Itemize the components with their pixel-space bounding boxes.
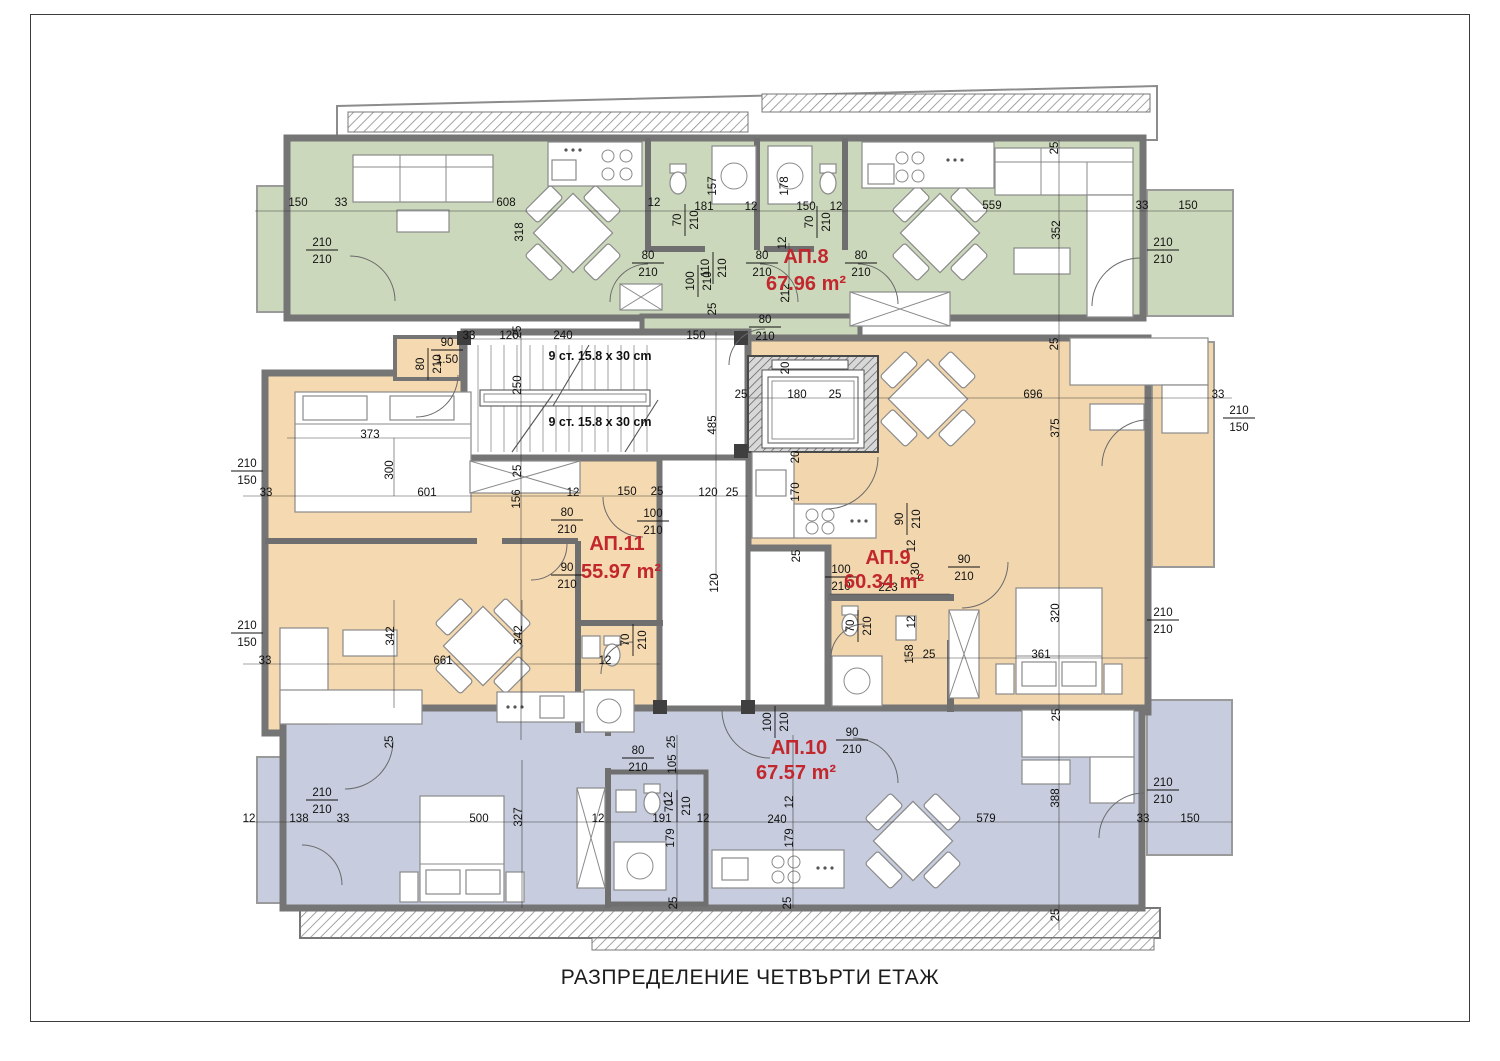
dimension-label: 138 bbox=[289, 813, 308, 825]
svg-text:210: 210 bbox=[312, 254, 331, 266]
svg-text:210: 210 bbox=[557, 524, 576, 536]
svg-text:250: 250 bbox=[512, 375, 524, 394]
svg-text:210: 210 bbox=[842, 744, 861, 756]
svg-text:240: 240 bbox=[767, 814, 786, 826]
svg-text:25: 25 bbox=[668, 897, 680, 910]
svg-text:150: 150 bbox=[617, 486, 636, 498]
dimension-label: 318 bbox=[514, 222, 526, 241]
svg-text:342: 342 bbox=[385, 626, 397, 645]
svg-text:12: 12 bbox=[648, 197, 661, 209]
svg-text:210: 210 bbox=[1153, 624, 1172, 636]
svg-text:661: 661 bbox=[433, 655, 452, 667]
dimension-label: 25 bbox=[1049, 338, 1061, 351]
stair-note: 9 ст. 15.8 x 30 cm bbox=[548, 415, 651, 429]
svg-text:120: 120 bbox=[709, 573, 721, 592]
svg-text:210: 210 bbox=[312, 804, 331, 816]
dimension-label: 33 bbox=[1212, 389, 1225, 401]
dimension-label: 579 bbox=[976, 813, 995, 825]
svg-text:25: 25 bbox=[782, 897, 794, 910]
svg-text:210: 210 bbox=[1153, 607, 1172, 619]
svg-text:12: 12 bbox=[745, 201, 758, 213]
svg-text:210: 210 bbox=[312, 787, 331, 799]
dimension-label: 178 bbox=[779, 176, 791, 195]
dimension-label: 12 bbox=[697, 813, 710, 825]
svg-text:210: 210 bbox=[237, 620, 256, 632]
svg-text:90: 90 bbox=[894, 513, 906, 526]
svg-text:210: 210 bbox=[1153, 777, 1172, 789]
svg-text:579: 579 bbox=[976, 813, 995, 825]
svg-text:12: 12 bbox=[830, 201, 843, 213]
dimension-label: 388 bbox=[1050, 788, 1062, 807]
svg-text:210: 210 bbox=[432, 354, 444, 373]
dimension-label: 12 bbox=[745, 201, 758, 213]
dimension-label: 33 bbox=[463, 330, 476, 342]
dimension-label: 33 bbox=[1137, 813, 1150, 825]
dimension-label: 25 bbox=[829, 389, 842, 401]
dimension-label: 179 bbox=[784, 828, 796, 847]
dimension-label: 180 bbox=[787, 389, 806, 401]
drawing-sheet: 1503360831821021012157181121781501270210… bbox=[0, 0, 1500, 1061]
svg-text:80: 80 bbox=[632, 745, 645, 757]
svg-text:210: 210 bbox=[779, 712, 791, 731]
svg-text:25: 25 bbox=[512, 326, 524, 339]
dimension-label: 25 bbox=[666, 736, 678, 749]
dimension-label: 150 bbox=[617, 486, 636, 498]
dimension-label: 352 bbox=[1051, 220, 1063, 239]
svg-text:210: 210 bbox=[911, 509, 923, 528]
dimension-label: 33 bbox=[335, 197, 348, 209]
dimension-label: 25 bbox=[1050, 909, 1062, 922]
svg-text:100: 100 bbox=[643, 508, 662, 520]
dimension-label: 120 bbox=[698, 487, 717, 499]
dimension-label: 179 bbox=[665, 828, 677, 847]
svg-text:210: 210 bbox=[1153, 254, 1172, 266]
dimension-label: 25 bbox=[512, 465, 524, 478]
svg-text:90: 90 bbox=[958, 554, 971, 566]
dimension-label: 150 bbox=[1180, 813, 1199, 825]
svg-text:210: 210 bbox=[1153, 794, 1172, 806]
svg-text:25: 25 bbox=[735, 389, 748, 401]
dimension-label: 12 bbox=[243, 813, 256, 825]
svg-text:210: 210 bbox=[643, 525, 662, 537]
dimension-label: 12 bbox=[648, 197, 661, 209]
svg-text:210: 210 bbox=[954, 571, 973, 583]
svg-text:210: 210 bbox=[237, 458, 256, 470]
svg-text:АП.8: АП.8 bbox=[783, 246, 828, 268]
svg-text:156: 156 bbox=[511, 489, 523, 508]
dimension-label: 240 bbox=[767, 814, 786, 826]
svg-text:67.96 m²: 67.96 m² bbox=[766, 273, 846, 295]
svg-text:80: 80 bbox=[759, 314, 772, 326]
svg-text:80: 80 bbox=[561, 507, 574, 519]
dimension-label: 300 bbox=[384, 460, 396, 479]
svg-text:150: 150 bbox=[1180, 813, 1199, 825]
svg-text:90: 90 bbox=[846, 727, 859, 739]
svg-text:25: 25 bbox=[1050, 909, 1062, 922]
dimension-label: 157 bbox=[707, 176, 719, 195]
dimension-label: 485 bbox=[707, 415, 719, 434]
dimension-label: 559 bbox=[982, 200, 1001, 212]
svg-text:178: 178 bbox=[779, 176, 791, 195]
svg-text:150: 150 bbox=[288, 197, 307, 209]
bottom-terrace bbox=[300, 908, 1160, 950]
svg-text:150: 150 bbox=[237, 637, 256, 649]
svg-text:361: 361 bbox=[1031, 649, 1050, 661]
svg-text:25: 25 bbox=[1051, 709, 1063, 722]
svg-text:210: 210 bbox=[755, 331, 774, 343]
dimension-label: 12 bbox=[784, 796, 796, 809]
dimension-label: 210210 bbox=[1147, 607, 1179, 636]
dimension-label: 33 bbox=[337, 813, 350, 825]
dimension-label: 191 bbox=[652, 813, 671, 825]
dimension-label: 25 bbox=[668, 897, 680, 910]
svg-text:170: 170 bbox=[790, 482, 802, 501]
svg-text:375: 375 bbox=[1050, 418, 1062, 437]
svg-text:210: 210 bbox=[637, 630, 649, 649]
svg-text:373: 373 bbox=[360, 429, 379, 441]
svg-text:33: 33 bbox=[337, 813, 350, 825]
dimension-label: 105 bbox=[667, 754, 679, 773]
dimension-label: 210150 bbox=[231, 458, 263, 487]
dimension-label: 170 bbox=[790, 482, 802, 501]
svg-text:210: 210 bbox=[1229, 405, 1248, 417]
svg-text:157: 157 bbox=[707, 176, 719, 195]
dimension-label: 327 bbox=[513, 807, 525, 826]
svg-text:191: 191 bbox=[652, 813, 671, 825]
svg-text:25: 25 bbox=[829, 389, 842, 401]
svg-text:180: 180 bbox=[787, 389, 806, 401]
dimension-label: 25 bbox=[1051, 709, 1063, 722]
svg-text:179: 179 bbox=[665, 828, 677, 847]
svg-text:150: 150 bbox=[237, 475, 256, 487]
svg-text:АП.11: АП.11 bbox=[589, 533, 644, 555]
svg-text:210: 210 bbox=[628, 762, 647, 774]
dimension-label: 25 bbox=[707, 303, 719, 316]
svg-text:25: 25 bbox=[1049, 338, 1061, 351]
svg-text:12: 12 bbox=[784, 796, 796, 809]
dimension-label: 25 bbox=[384, 736, 396, 749]
svg-text:33: 33 bbox=[1137, 813, 1150, 825]
svg-text:179: 179 bbox=[784, 828, 796, 847]
svg-text:210: 210 bbox=[557, 579, 576, 591]
dimension-label: 150 bbox=[1178, 200, 1197, 212]
svg-text:12: 12 bbox=[663, 792, 675, 805]
svg-text:33: 33 bbox=[259, 655, 272, 667]
svg-text:150: 150 bbox=[1229, 422, 1248, 434]
svg-text:105: 105 bbox=[667, 754, 679, 773]
svg-text:300: 300 bbox=[384, 460, 396, 479]
dimension-label: 250 bbox=[512, 375, 524, 394]
dimension-label: 25 bbox=[651, 486, 664, 498]
dimension-label: 320 bbox=[1050, 603, 1062, 622]
dimension-label: 12 bbox=[906, 616, 918, 629]
dimension-label: 25 bbox=[512, 326, 524, 339]
dimension-label: 25 bbox=[1049, 142, 1061, 155]
svg-text:АП.10: АП.10 bbox=[771, 737, 827, 759]
dimension-label: 33 bbox=[260, 487, 273, 499]
svg-text:138: 138 bbox=[289, 813, 308, 825]
svg-text:158: 158 bbox=[904, 644, 916, 663]
dimension-label: 33 bbox=[1136, 200, 1149, 212]
svg-text:80: 80 bbox=[756, 250, 769, 262]
dimension-label: 158 bbox=[904, 644, 916, 663]
svg-text:601: 601 bbox=[417, 487, 436, 499]
svg-text:210: 210 bbox=[702, 271, 714, 290]
svg-text:55.97 m²: 55.97 m² bbox=[581, 561, 661, 583]
svg-text:388: 388 bbox=[1050, 788, 1062, 807]
svg-text:100: 100 bbox=[762, 712, 774, 731]
dimension-label: 150 bbox=[686, 330, 705, 342]
dimension-label: 25 bbox=[791, 550, 803, 563]
svg-text:25: 25 bbox=[707, 303, 719, 316]
dimension-label: 373 bbox=[360, 429, 379, 441]
dimension-label: 33 bbox=[259, 655, 272, 667]
dimension-label: 661 bbox=[433, 655, 452, 667]
svg-text:320: 320 bbox=[1050, 603, 1062, 622]
svg-text:12: 12 bbox=[599, 655, 612, 667]
svg-text:210: 210 bbox=[638, 267, 657, 279]
svg-text:25: 25 bbox=[512, 465, 524, 478]
svg-text:25: 25 bbox=[1049, 142, 1061, 155]
top-terrace bbox=[337, 86, 1157, 140]
svg-text:25: 25 bbox=[666, 736, 678, 749]
svg-text:33: 33 bbox=[1212, 389, 1225, 401]
svg-text:150: 150 bbox=[1178, 200, 1197, 212]
svg-text:60.34 m²: 60.34 m² bbox=[844, 571, 924, 593]
svg-text:АП.9: АП.9 bbox=[865, 547, 910, 569]
svg-text:485: 485 bbox=[707, 415, 719, 434]
svg-text:696: 696 bbox=[1023, 389, 1042, 401]
dimension-label: 696 bbox=[1023, 389, 1042, 401]
svg-text:12: 12 bbox=[567, 487, 580, 499]
dimension-label: 25 bbox=[782, 897, 794, 910]
svg-text:352: 352 bbox=[1051, 220, 1063, 239]
dimension-label: 25 bbox=[923, 649, 936, 661]
svg-text:100: 100 bbox=[685, 271, 697, 290]
svg-text:210: 210 bbox=[862, 616, 874, 635]
svg-text:70: 70 bbox=[672, 214, 684, 227]
dimension-label: 342 bbox=[385, 626, 397, 645]
svg-text:80: 80 bbox=[855, 250, 868, 262]
svg-text:210: 210 bbox=[821, 212, 833, 231]
svg-text:20: 20 bbox=[790, 451, 802, 464]
svg-text:210: 210 bbox=[312, 237, 331, 249]
dimension-label: 500 bbox=[469, 813, 488, 825]
svg-text:90: 90 bbox=[441, 337, 454, 349]
drawing-title: РАЗПРЕДЕЛЕНИЕ ЧЕТВЪРТИ ЕТАЖ bbox=[0, 966, 1500, 990]
dimension-label: 25 bbox=[735, 389, 748, 401]
dimension-label: 156 bbox=[511, 489, 523, 508]
svg-text:80: 80 bbox=[642, 250, 655, 262]
dimension-label: 12 bbox=[663, 792, 675, 805]
dimension-label: 375 bbox=[1050, 418, 1062, 437]
svg-text:25: 25 bbox=[651, 486, 664, 498]
svg-text:318: 318 bbox=[514, 222, 526, 241]
svg-text:210: 210 bbox=[681, 796, 693, 815]
dimension-label: 361 bbox=[1031, 649, 1050, 661]
stair-note: 9 ст. 15.8 x 30 cm bbox=[548, 349, 651, 363]
dimension-label: 12 bbox=[567, 487, 580, 499]
dimension-label: 12 bbox=[599, 655, 612, 667]
dimension-label: 608 bbox=[496, 197, 515, 209]
svg-text:210: 210 bbox=[851, 267, 870, 279]
svg-text:150: 150 bbox=[796, 201, 815, 213]
svg-text:12: 12 bbox=[697, 813, 710, 825]
svg-text:12: 12 bbox=[243, 813, 256, 825]
svg-text:67.57 m²: 67.57 m² bbox=[756, 762, 836, 784]
dimension-label: 120 bbox=[709, 573, 721, 592]
svg-text:12: 12 bbox=[906, 616, 918, 629]
dimension-label: 12 bbox=[592, 813, 605, 825]
svg-text:33: 33 bbox=[335, 197, 348, 209]
floor-plan: 1503360831821021012157181121781501270210… bbox=[0, 0, 1500, 1061]
dimension-label: 12 bbox=[830, 201, 843, 213]
svg-text:210: 210 bbox=[689, 210, 701, 229]
dimension-label: 20 bbox=[790, 451, 802, 464]
svg-text:80: 80 bbox=[415, 358, 427, 371]
svg-text:25: 25 bbox=[791, 550, 803, 563]
dimension-label: 210150 bbox=[1223, 405, 1255, 434]
svg-text:90: 90 bbox=[561, 562, 574, 574]
svg-text:150: 150 bbox=[686, 330, 705, 342]
svg-text:33: 33 bbox=[463, 330, 476, 342]
svg-text:70: 70 bbox=[845, 620, 857, 633]
svg-text:33: 33 bbox=[1136, 200, 1149, 212]
svg-text:327: 327 bbox=[513, 807, 525, 826]
svg-text:12: 12 bbox=[592, 813, 605, 825]
dimension-label: 601 bbox=[417, 487, 436, 499]
svg-text:20: 20 bbox=[780, 362, 792, 375]
dimension-label: 342 bbox=[513, 625, 525, 644]
svg-text:25: 25 bbox=[384, 736, 396, 749]
svg-text:25: 25 bbox=[726, 487, 739, 499]
svg-text:210: 210 bbox=[1153, 237, 1172, 249]
svg-text:608: 608 bbox=[496, 197, 515, 209]
svg-text:70: 70 bbox=[804, 216, 816, 229]
svg-text:559: 559 bbox=[982, 200, 1001, 212]
svg-text:210: 210 bbox=[717, 258, 729, 277]
svg-text:33: 33 bbox=[260, 487, 273, 499]
svg-text:500: 500 bbox=[469, 813, 488, 825]
dimension-label: 240 bbox=[553, 330, 572, 342]
svg-text:120: 120 bbox=[698, 487, 717, 499]
svg-text:25: 25 bbox=[923, 649, 936, 661]
elevator bbox=[748, 356, 878, 452]
dimension-label: 25 bbox=[726, 487, 739, 499]
dimension-label: 210150 bbox=[231, 620, 263, 649]
dimension-label: 20 bbox=[780, 362, 792, 375]
svg-text:70: 70 bbox=[620, 634, 632, 647]
svg-text:240: 240 bbox=[553, 330, 572, 342]
svg-text:342: 342 bbox=[513, 625, 525, 644]
dimension-label: 150 bbox=[288, 197, 307, 209]
dimension-label: 150 bbox=[796, 201, 815, 213]
